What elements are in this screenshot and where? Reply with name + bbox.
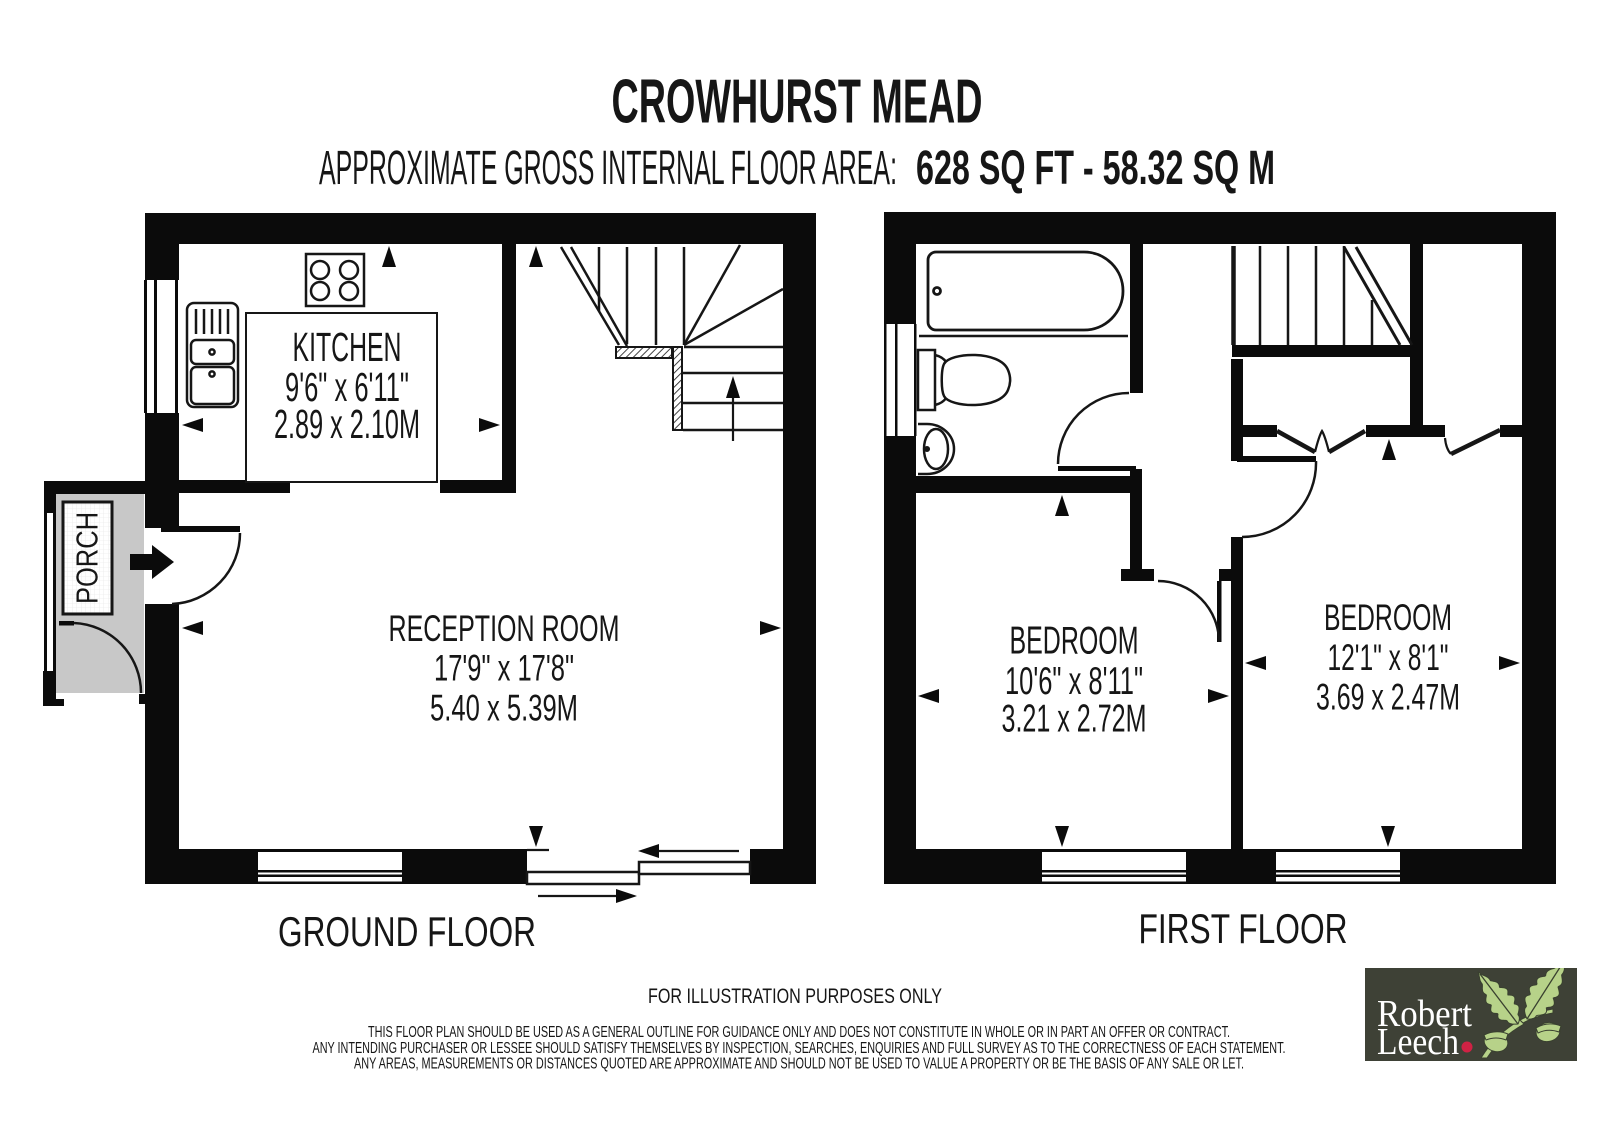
svg-text:12'1" x 8'1": 12'1" x 8'1" [1328, 637, 1449, 678]
svg-text:5.40 x 5.39M: 5.40 x 5.39M [430, 688, 578, 729]
svg-text:ANY AREAS, MEASUREMENTS OR DIS: ANY AREAS, MEASUREMENTS OR DISTANCES QUO… [354, 1056, 1244, 1073]
svg-text:PORCH: PORCH [70, 512, 105, 604]
svg-text:3.69 x 2.47M: 3.69 x 2.47M [1316, 677, 1460, 718]
svg-text:THIS FLOOR PLAN SHOULD BE USED: THIS FLOOR PLAN SHOULD BE USED AS A GENE… [368, 1024, 1230, 1041]
svg-text:628 SQ FT - 58.32 SQ M: 628 SQ FT - 58.32 SQ M [916, 142, 1275, 195]
svg-text:APPROXIMATE GROSS INTERNAL FLO: APPROXIMATE GROSS INTERNAL FLOOR AREA: [319, 142, 897, 195]
svg-text:BEDROOM: BEDROOM [1010, 620, 1139, 663]
svg-text:RECEPTION ROOM: RECEPTION ROOM [389, 608, 620, 649]
svg-text:ANY INTENDING PURCHASER OR LES: ANY INTENDING PURCHASER OR LESSEE SHOULD… [313, 1040, 1286, 1057]
svg-text:3.21 x 2.72M: 3.21 x 2.72M [1002, 698, 1147, 741]
svg-text:FOR ILLUSTRATION PURPOSES ONLY: FOR ILLUSTRATION PURPOSES ONLY [648, 985, 942, 1008]
svg-text:FIRST FLOOR: FIRST FLOOR [1139, 905, 1348, 952]
svg-text:Leech: Leech [1377, 1021, 1459, 1063]
svg-text:CROWHURST MEAD: CROWHURST MEAD [612, 68, 983, 137]
svg-text:2.89 x 2.10M: 2.89 x 2.10M [274, 401, 420, 447]
svg-text:GROUND FLOOR: GROUND FLOOR [278, 908, 536, 955]
svg-text:17'9" x 17'8": 17'9" x 17'8" [434, 648, 574, 689]
svg-text:BEDROOM: BEDROOM [1324, 597, 1452, 638]
